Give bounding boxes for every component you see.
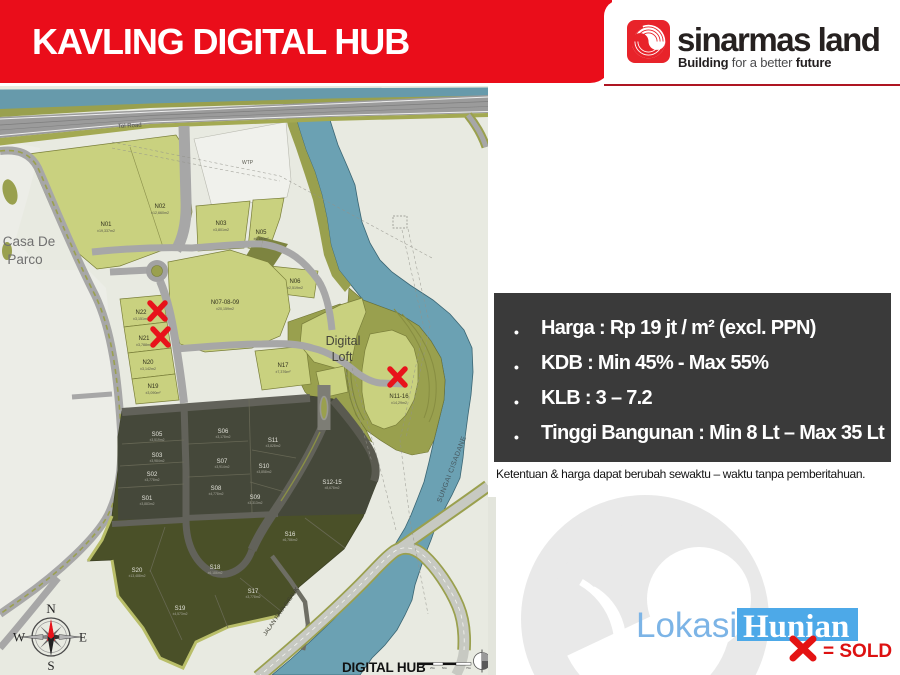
svg-text:±3,858m2: ±3,858m2 xyxy=(256,470,271,474)
svg-text:±3,778m2: ±3,778m2 xyxy=(144,478,159,482)
svg-text:Parco: Parco xyxy=(7,252,42,267)
svg-text:75m: 75m xyxy=(466,666,471,670)
svg-text:±3,801m2: ±3,801m2 xyxy=(213,228,229,232)
svg-text:50m: 50m xyxy=(442,666,447,670)
svg-text:±4,778m2: ±4,778m2 xyxy=(208,492,223,496)
svg-text:±3,914m2: ±3,914m2 xyxy=(214,465,229,469)
svg-text:Digital: Digital xyxy=(326,334,361,348)
svg-text:±3,178m2: ±3,178m2 xyxy=(215,435,230,439)
svg-text:N03: N03 xyxy=(215,221,227,227)
svg-text:Tol Road: Tol Road xyxy=(118,123,142,130)
svg-text:±3,151m2: ±3,151m2 xyxy=(133,317,149,321)
svg-text:±6,786m2: ±6,786m2 xyxy=(282,538,297,542)
svg-text:±3,313m2: ±3,313m2 xyxy=(247,501,262,505)
svg-text:N07-08-09: N07-08-09 xyxy=(211,300,240,306)
svg-text:±3,788m2: ±3,788m2 xyxy=(136,343,152,347)
svg-text:±6,160m²: ±6,160m² xyxy=(253,237,269,241)
svg-text:±8,678m2: ±8,678m2 xyxy=(324,486,339,490)
svg-text:±3,984m2: ±3,984m2 xyxy=(149,459,164,463)
svg-text:Loft: Loft xyxy=(332,350,353,364)
svg-text:±6,186m2: ±6,186m2 xyxy=(207,571,222,575)
svg-text:N17: N17 xyxy=(277,363,289,369)
svg-text:±14,29m2: ±14,29m2 xyxy=(391,401,407,405)
svg-text:±4,573m2: ±4,573m2 xyxy=(172,612,187,616)
svg-text:N22: N22 xyxy=(135,310,147,316)
svg-text:N02: N02 xyxy=(154,204,166,210)
svg-text:±3,519m2: ±3,519m2 xyxy=(149,438,164,442)
svg-text:±20,159m2: ±20,159m2 xyxy=(216,307,234,311)
svg-text:±3,778m2: ±3,778m2 xyxy=(245,595,260,599)
svg-text:WTP: WTP xyxy=(242,160,254,166)
svg-text:±19,337m2: ±19,337m2 xyxy=(97,229,115,233)
svg-text:±13,488m2: ±13,488m2 xyxy=(129,574,146,578)
svg-text:E: E xyxy=(79,630,87,645)
svg-text:25m: 25m xyxy=(430,666,435,670)
svg-text:N06: N06 xyxy=(289,279,301,285)
svg-text:±3,090m²: ±3,090m² xyxy=(145,391,161,395)
svg-text:N: N xyxy=(46,601,56,616)
svg-text:±7,376m²: ±7,376m² xyxy=(275,370,291,374)
svg-text:±2,519m2: ±2,519m2 xyxy=(287,286,303,290)
svg-text:±3,883m2: ±3,883m2 xyxy=(139,502,154,506)
svg-text:±3,142m2: ±3,142m2 xyxy=(140,367,156,371)
svg-text:N19: N19 xyxy=(147,384,159,390)
svg-text:±3,828m2: ±3,828m2 xyxy=(265,444,280,448)
svg-text:N20: N20 xyxy=(142,360,154,366)
svg-text:Casa De: Casa De xyxy=(3,234,56,249)
svg-text:W: W xyxy=(13,630,26,645)
svg-text:±12,660m2: ±12,660m2 xyxy=(151,211,169,215)
svg-text:N11-16: N11-16 xyxy=(389,394,409,400)
svg-text:N21: N21 xyxy=(138,336,150,342)
svg-text:DIGITAL HUB: DIGITAL HUB xyxy=(342,660,426,675)
svg-text:N05: N05 xyxy=(255,230,267,236)
svg-text:S: S xyxy=(47,658,54,673)
svg-text:N01: N01 xyxy=(100,222,112,228)
